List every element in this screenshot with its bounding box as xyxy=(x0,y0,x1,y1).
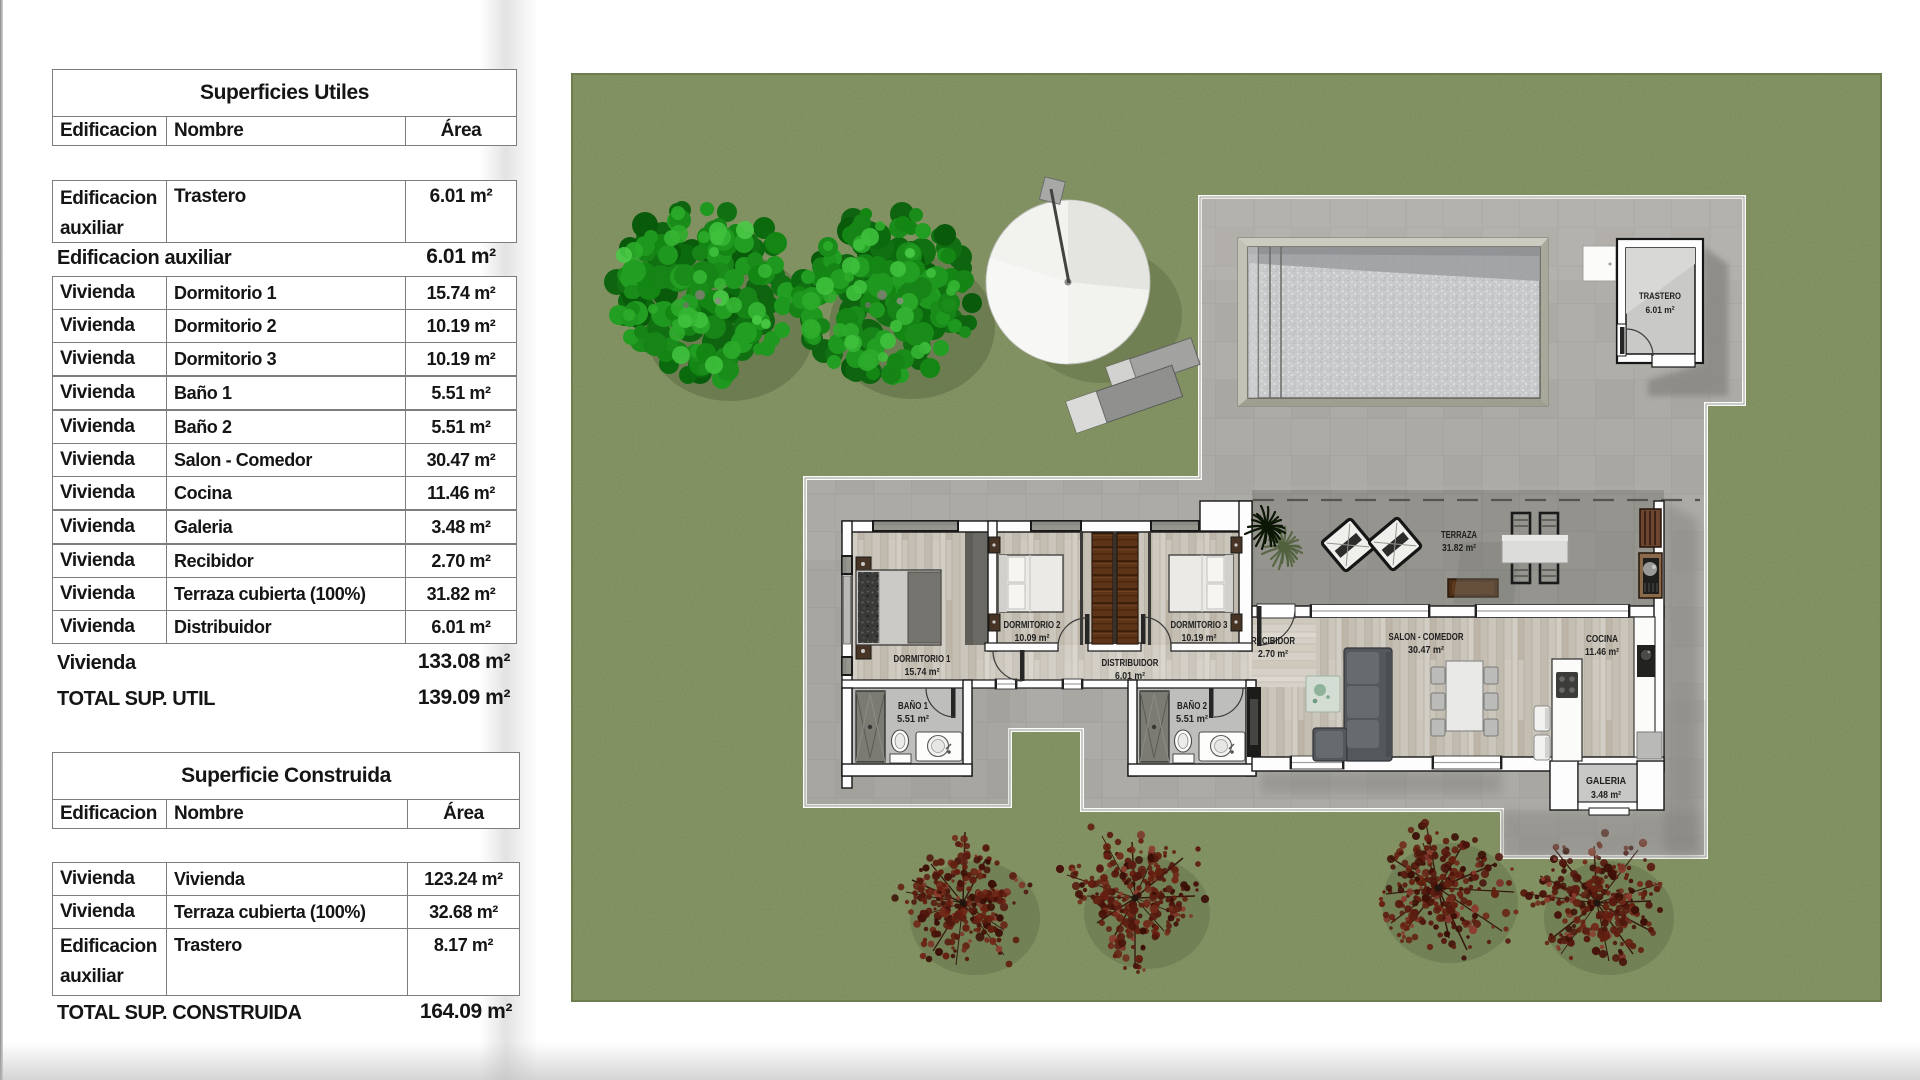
svg-text:TERRAZA: TERRAZA xyxy=(1441,530,1477,541)
svg-text:DISTRIBUIDOR: DISTRIBUIDOR xyxy=(1102,658,1160,669)
svg-text:6.01 m²: 6.01 m² xyxy=(1115,671,1146,682)
svg-text:2.70 m²: 2.70 m² xyxy=(1258,649,1289,660)
svg-text:11.46 m²: 11.46 m² xyxy=(1585,647,1620,658)
svg-text:DORMITORIO 1: DORMITORIO 1 xyxy=(894,654,951,665)
svg-text:COCINA: COCINA xyxy=(1586,634,1618,645)
svg-text:6.01 m²: 6.01 m² xyxy=(1646,305,1675,316)
svg-text:3.48 m²: 3.48 m² xyxy=(1591,790,1622,801)
svg-text:TRASTERO: TRASTERO xyxy=(1639,291,1681,302)
svg-text:BAÑO 2: BAÑO 2 xyxy=(1177,699,1207,712)
svg-text:SALON - COMEDOR: SALON - COMEDOR xyxy=(1389,632,1465,643)
svg-text:10.19 m²: 10.19 m² xyxy=(1182,633,1218,644)
svg-text:5.51 m²: 5.51 m² xyxy=(1176,714,1209,725)
svg-text:15.74 m²: 15.74 m² xyxy=(905,667,941,678)
svg-text:31.82 m²: 31.82 m² xyxy=(1442,543,1477,554)
svg-text:DORMITORIO 3: DORMITORIO 3 xyxy=(1171,620,1228,631)
svg-text:10.09 m²: 10.09 m² xyxy=(1015,633,1051,644)
svg-text:GALERIA: GALERIA xyxy=(1586,776,1626,787)
svg-text:30.47 m²: 30.47 m² xyxy=(1408,645,1445,656)
svg-text:DORMITORIO 2: DORMITORIO 2 xyxy=(1004,620,1061,631)
svg-text:RECIBIDOR: RECIBIDOR xyxy=(1251,636,1296,647)
svg-text:5.51 m²: 5.51 m² xyxy=(897,714,930,725)
svg-text:BAÑO 1: BAÑO 1 xyxy=(898,699,928,712)
